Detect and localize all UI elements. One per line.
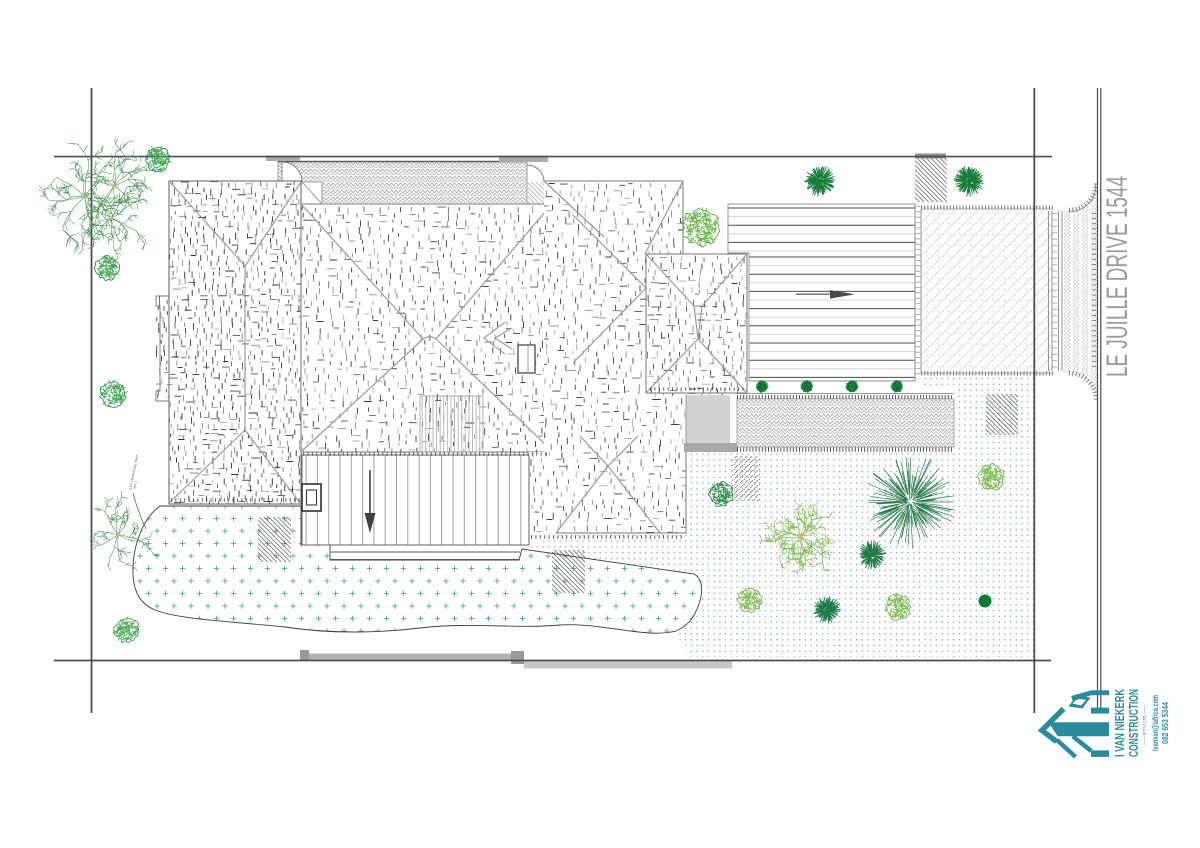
svg-text:LE JUILLE DRIVE 1544: LE JUILLE DRIVE 1544: [1101, 176, 1134, 377]
svg-text:I VAN NIEKERK: I VAN NIEKERK: [1112, 689, 1127, 757]
svg-text:CONSTRUCTION: CONSTRUCTION: [1126, 689, 1141, 757]
svg-text:NO 2: NO 2: [132, 481, 138, 489]
svg-text:—— (PTY) LTD ——: —— (PTY) LTD ——: [1142, 705, 1147, 745]
svg-text:082 653 5344: 082 653 5344: [1161, 702, 1170, 744]
svg-text:ivanvan@iafrica.com: ivanvan@iafrica.com: [1151, 695, 1160, 751]
